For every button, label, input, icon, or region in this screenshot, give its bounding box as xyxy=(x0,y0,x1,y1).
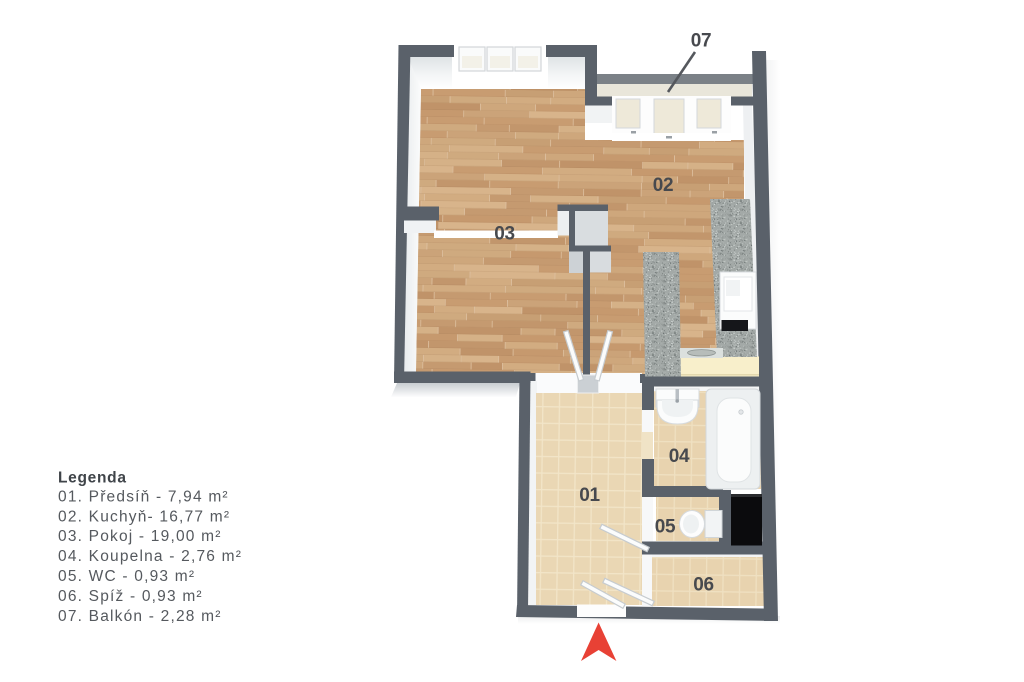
svg-text:07: 07 xyxy=(691,31,712,52)
svg-text:02. Kuchyň- 16,77 m²: 02. Kuchyň- 16,77 m² xyxy=(58,508,230,525)
svg-text:Legenda: Legenda xyxy=(58,470,127,487)
svg-text:05. WC - 0,93 m²: 05. WC - 0,93 m² xyxy=(58,568,195,585)
svg-text:02: 02 xyxy=(653,175,674,196)
svg-text:01: 01 xyxy=(579,485,600,506)
svg-text:04: 04 xyxy=(669,446,690,467)
svg-text:06: 06 xyxy=(693,575,714,596)
svg-text:04. Koupelna - 2,76 m²: 04. Koupelna - 2,76 m² xyxy=(58,548,242,565)
svg-text:07. Balkón - 2,28 m²: 07. Balkón - 2,28 m² xyxy=(58,608,222,625)
svg-text:03. Pokoj - 19,00 m²: 03. Pokoj - 19,00 m² xyxy=(58,528,222,545)
svg-text:05: 05 xyxy=(655,517,676,538)
svg-text:06. Spíž - 0,93 m²: 06. Spíž - 0,93 m² xyxy=(58,588,203,605)
svg-text:03: 03 xyxy=(494,224,515,245)
svg-text:01. Předsíň - 7,94 m²: 01. Předsíň - 7,94 m² xyxy=(58,488,229,505)
